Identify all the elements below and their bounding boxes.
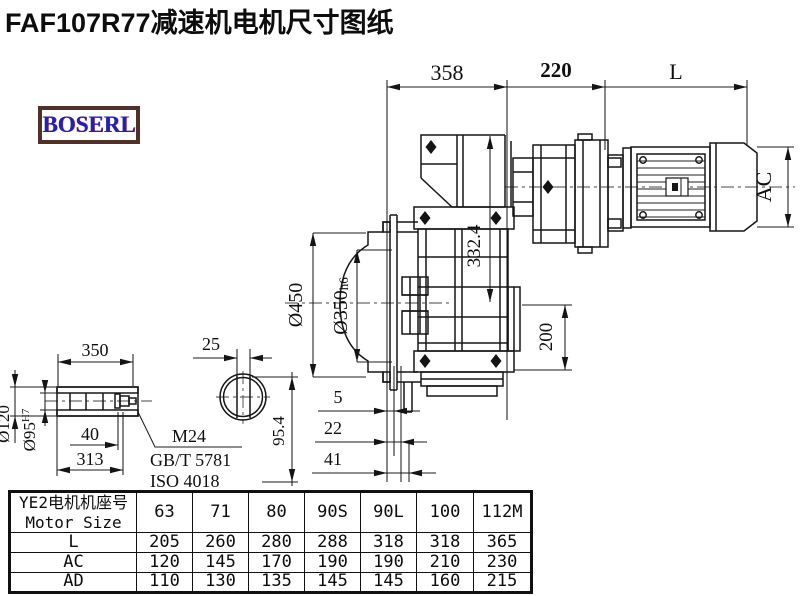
- cell: 110: [137, 573, 193, 593]
- cell: 210: [417, 553, 474, 573]
- row-label-L: L: [10, 533, 137, 553]
- bolt-mark: [491, 354, 502, 368]
- cell: 170: [249, 553, 305, 573]
- dim-332-label: 332.4: [464, 224, 485, 267]
- col-100: 100: [417, 492, 474, 533]
- motor-terminal: [666, 178, 688, 196]
- output-flange: [340, 215, 428, 412]
- cell: 190: [361, 553, 417, 573]
- dim-d120-label: Ø120: [0, 405, 13, 443]
- dim-5-label: 5: [334, 387, 343, 407]
- row-label-AC: AC: [10, 553, 137, 573]
- dim-41-label: 41: [324, 449, 342, 469]
- drawing-sheet: FAF107R77减速机电机尺寸图纸 BOSERL: [0, 0, 800, 596]
- dim-d95-label: Ø95H7: [20, 408, 39, 451]
- cell: 190: [305, 553, 361, 573]
- table-row-AD: AD 110 130 135 145 145 160 215: [10, 573, 532, 593]
- dim-200-label: 200: [536, 323, 557, 352]
- cell: 280: [249, 533, 305, 553]
- callout-gb: GB/T 5781: [150, 450, 231, 470]
- dim-L-label: L: [669, 59, 682, 84]
- dim-25-label: 25: [202, 334, 220, 354]
- callout-m24: M24: [172, 426, 206, 446]
- col-112m: 112M: [474, 492, 532, 533]
- dim-AC-label: AC: [751, 172, 776, 203]
- header-cn: YE2电机机座号: [11, 493, 136, 512]
- hollow-shaft-detail: [57, 387, 138, 416]
- table-row-AC: AC 120 145 170 190 190 210 230: [10, 553, 532, 573]
- col-90l: 90L: [361, 492, 417, 533]
- table-header-row: YE2电机机座号 Motor Size 63 71 80 90S 90L 100…: [10, 492, 532, 533]
- cell: 318: [417, 533, 474, 553]
- motor-size-table: YE2电机机座号 Motor Size 63 71 80 90S 90L 100…: [8, 490, 533, 594]
- col-80: 80: [249, 492, 305, 533]
- col-63: 63: [137, 492, 193, 533]
- bolt-mark: [426, 140, 437, 154]
- bolt-mark: [420, 211, 431, 225]
- bolt-mark: [491, 211, 502, 225]
- cell: 135: [249, 573, 305, 593]
- dim-40-label: 40: [81, 424, 99, 444]
- cell: 230: [474, 553, 532, 573]
- bolt-mark: [543, 180, 554, 194]
- dim-95-4-label: 95.4: [269, 416, 288, 446]
- cell: 215: [474, 573, 532, 593]
- dim-22-label: 22: [324, 418, 342, 438]
- table-row-L: L 205 260 280 288 318 318 365: [10, 533, 532, 553]
- callout-iso: ISO 4018: [150, 471, 220, 491]
- motor-adapter: [513, 134, 631, 253]
- dim-350-label: 350: [82, 340, 109, 360]
- dim-313-label: 313: [77, 449, 104, 469]
- bolt-mark: [420, 354, 431, 368]
- dim-358-label: 358: [431, 60, 464, 85]
- col-71: 71: [193, 492, 249, 533]
- dim-d350-label: Ø350h6: [330, 277, 352, 335]
- cell: 365: [474, 533, 532, 553]
- dim-220-label: 220: [540, 58, 572, 82]
- dim-d450-label: Ø450: [285, 283, 307, 327]
- cell: 120: [137, 553, 193, 573]
- table-header-motor-size: YE2电机机座号 Motor Size: [10, 492, 137, 533]
- cell: 160: [417, 573, 474, 593]
- dimension-labels: 358 220 L AC Ø450 Ø350h6 332.4 200 5 22 …: [0, 58, 776, 491]
- cell: 145: [361, 573, 417, 593]
- cell: 205: [137, 533, 193, 553]
- cell: 145: [305, 573, 361, 593]
- col-90s: 90S: [305, 492, 361, 533]
- cell: 130: [193, 573, 249, 593]
- header-en: Motor Size: [11, 513, 136, 532]
- cell: 145: [193, 553, 249, 573]
- cell: 318: [361, 533, 417, 553]
- row-label-AD: AD: [10, 573, 137, 593]
- cell: 288: [305, 533, 361, 553]
- cell: 260: [193, 533, 249, 553]
